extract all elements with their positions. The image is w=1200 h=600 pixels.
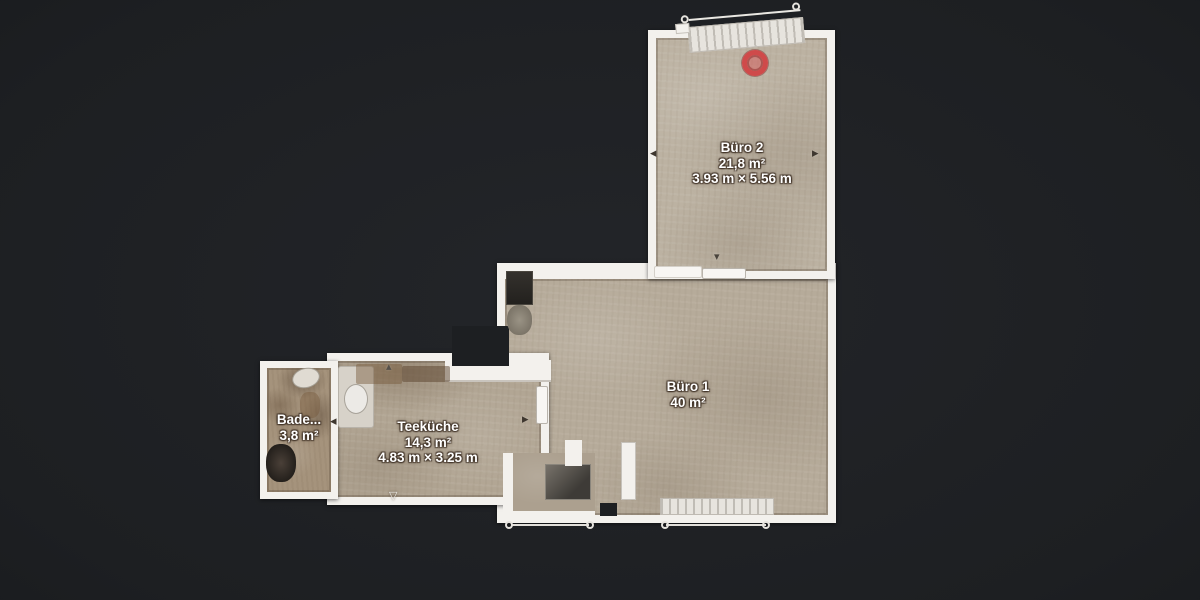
window-end-icon [661,521,669,529]
bathroom-fixture [300,392,320,418]
cabinet-furniture [506,271,533,305]
window-line [666,524,766,526]
door-threshold [402,366,450,382]
camera-position-marker-icon[interactable] [742,50,768,76]
door-leaf [654,266,702,278]
window-end-icon [586,521,594,529]
radiator [687,17,805,53]
door-leaf [702,268,746,279]
door-arrow-left-icon[interactable]: ◂ [330,414,337,427]
door-swing-open-icon[interactable]: ▽ [389,490,397,503]
door-leaf [536,386,548,424]
nav-arrow-left-icon[interactable]: ◂ [650,146,657,159]
kitchen-cabinet [356,364,402,384]
doormat [545,464,591,500]
chair-furniture [507,305,532,335]
exterior-notch [452,326,509,366]
door-arrow-right-icon[interactable]: ▸ [522,412,529,425]
room-buero-2[interactable] [648,30,835,279]
door-swing-down-icon[interactable]: ▾ [714,251,720,264]
wall-tab [675,23,690,34]
kitchen-sink [344,384,368,414]
window-line [511,524,589,526]
nav-arrow-right-icon[interactable]: ▸ [812,146,819,159]
wall-notch [600,503,617,516]
radiator [660,498,774,515]
open-door-leaf [621,442,636,500]
toilet [266,444,296,482]
window-end-icon [505,521,513,529]
wall-stub [565,440,582,466]
floor-plan-canvas[interactable]: ◂ ▸ ▾ ▴ ◂ ▸ ▽ Büro 2 21,8 m² 3.93 m × 5.… [0,0,1200,600]
door-swing-up-icon[interactable]: ▴ [386,361,392,374]
window-end-icon [762,521,770,529]
